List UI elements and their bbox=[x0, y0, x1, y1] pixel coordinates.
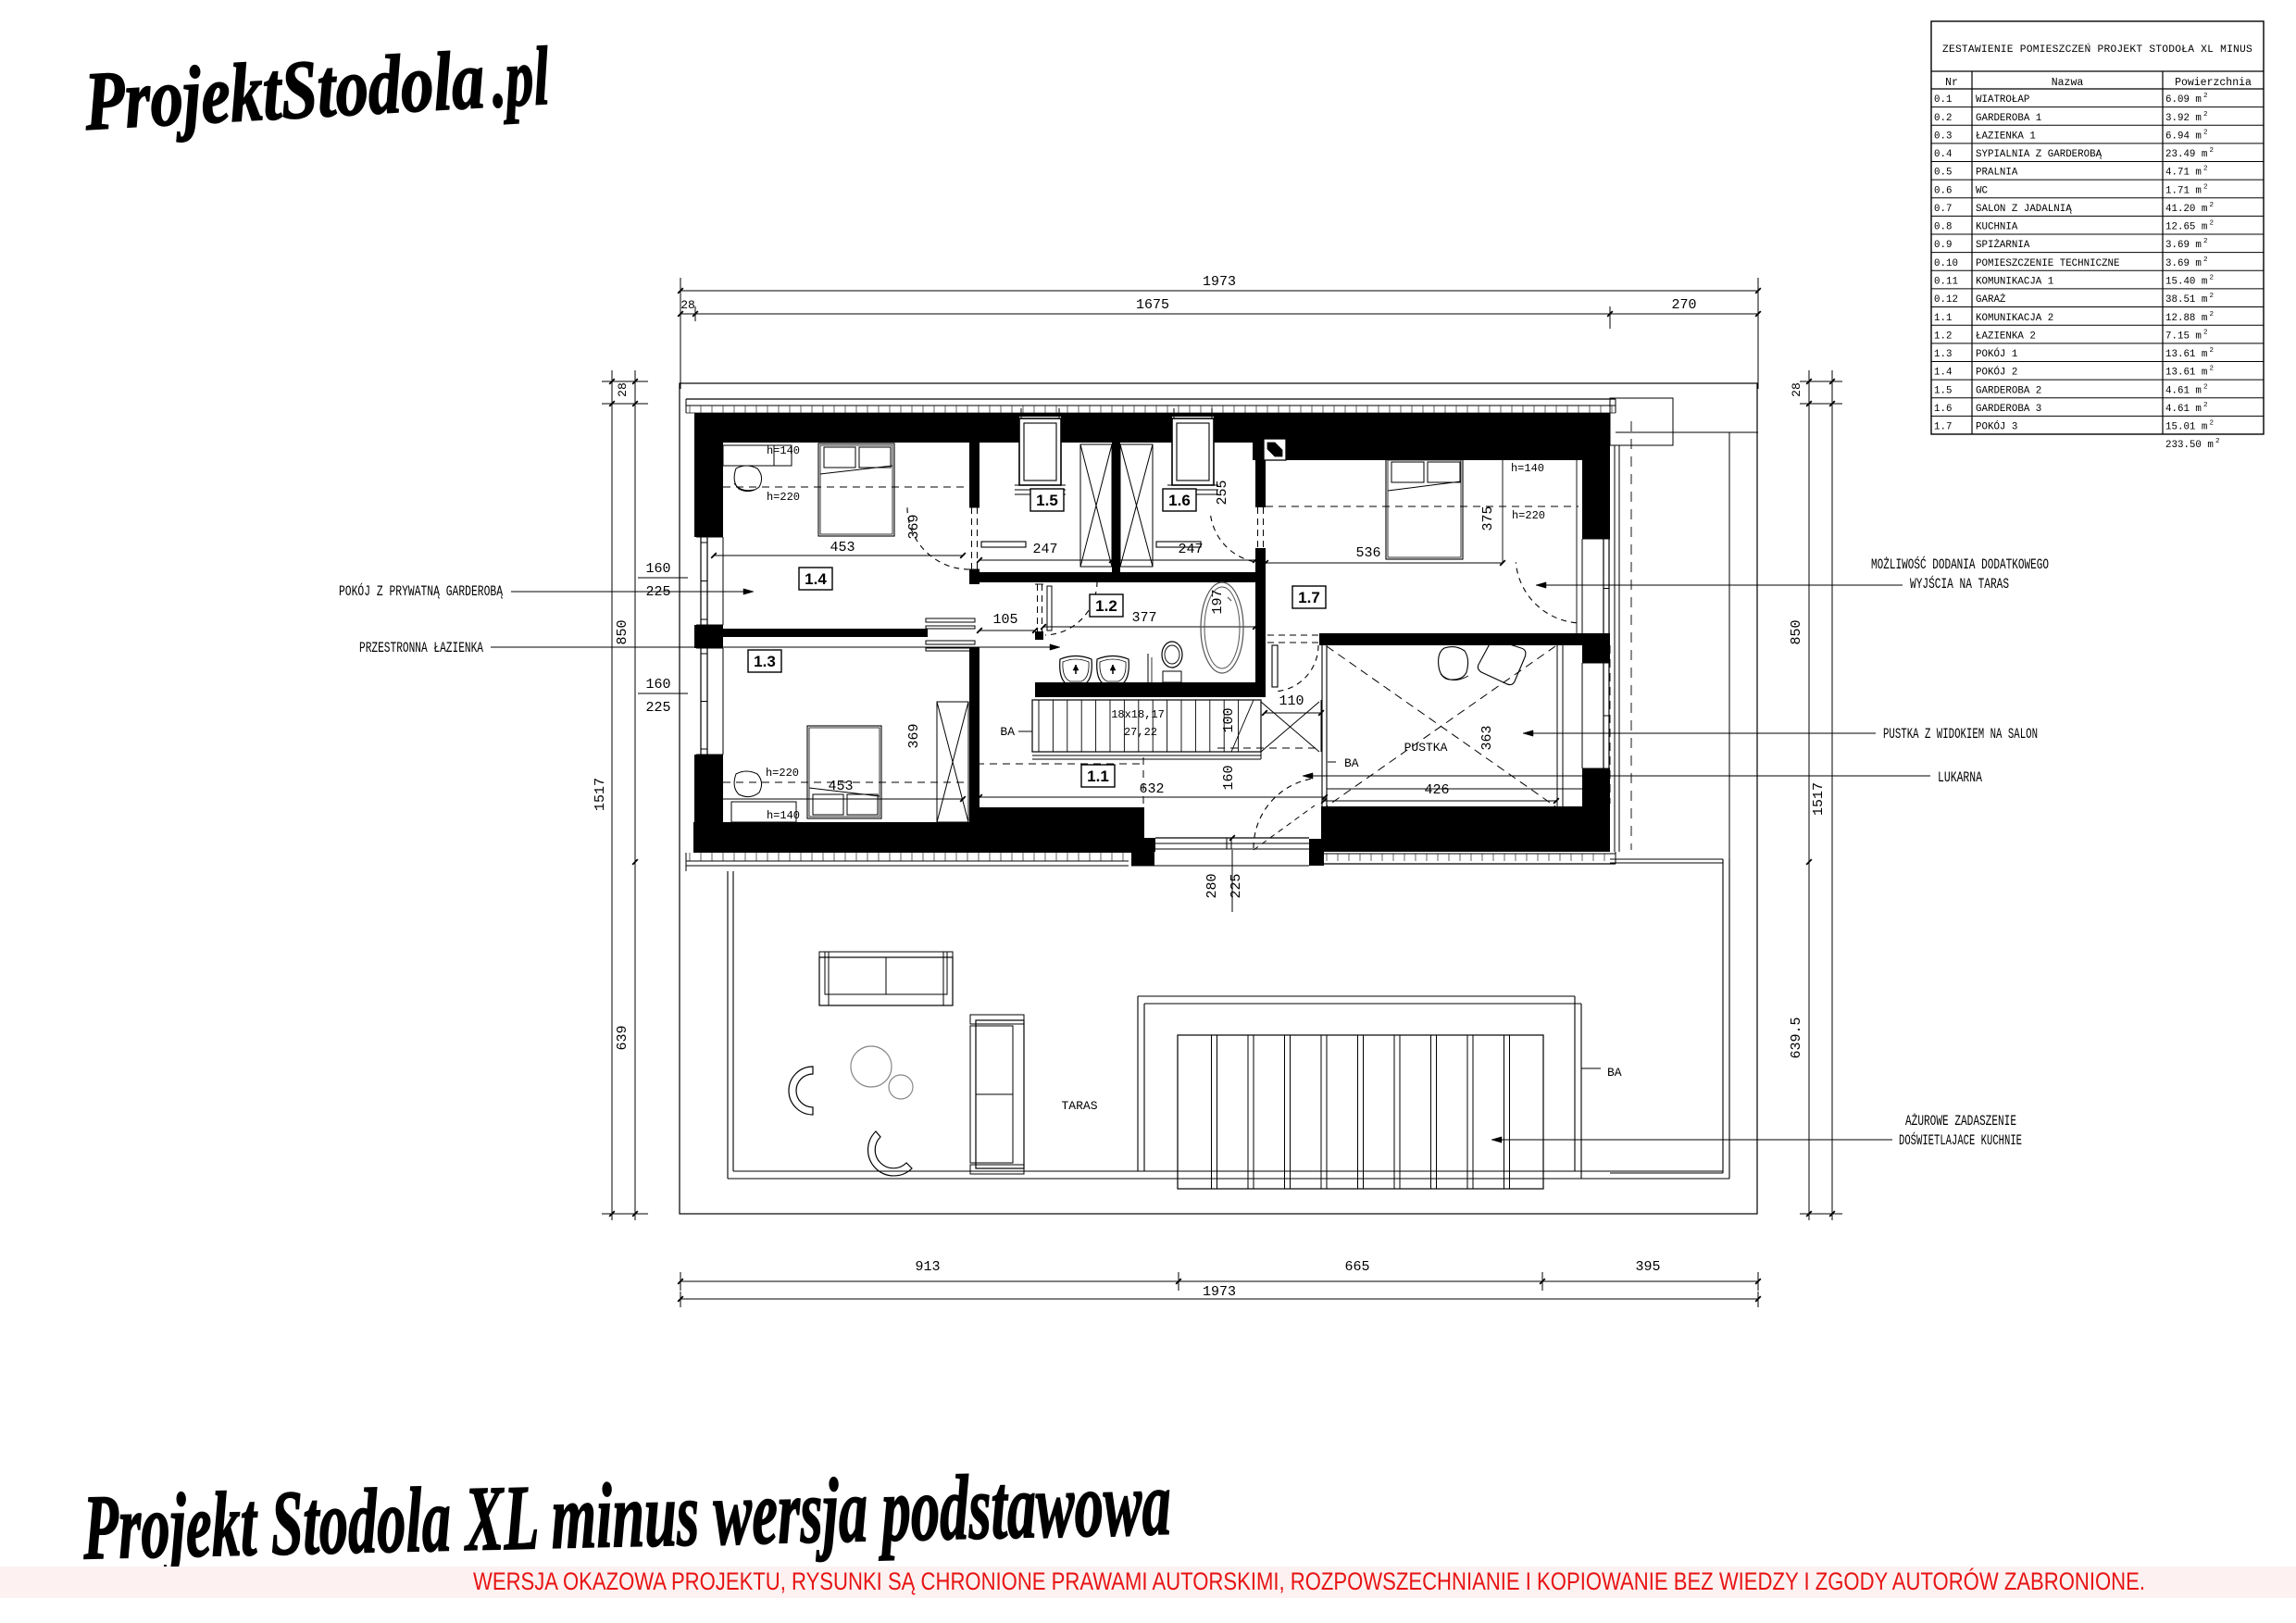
svg-text:2: 2 bbox=[2203, 111, 2208, 119]
svg-text:225: 225 bbox=[645, 700, 670, 716]
svg-text:160: 160 bbox=[645, 561, 670, 577]
svg-text:POKÓJ 1: POKÓJ 1 bbox=[1976, 347, 2017, 360]
svg-text:280: 280 bbox=[1204, 873, 1220, 898]
svg-text:POKÓJ 3: POKÓJ 3 bbox=[1976, 420, 2017, 433]
svg-text:PUSTKA Z WIDOKIEM NA SALON: PUSTKA Z WIDOKIEM NA SALON bbox=[1883, 726, 2038, 743]
svg-text:369: 369 bbox=[906, 514, 922, 539]
svg-text:1973: 1973 bbox=[1203, 1284, 1236, 1300]
svg-text:0.1: 0.1 bbox=[1934, 94, 1952, 106]
svg-text:6.09 m: 6.09 m bbox=[2165, 94, 2202, 106]
svg-text:160: 160 bbox=[645, 677, 670, 693]
svg-text:WC: WC bbox=[1976, 185, 1988, 196]
svg-text:KOMUNIKACJA 1: KOMUNIKACJA 1 bbox=[1976, 277, 2053, 288]
svg-text:41.20 m: 41.20 m bbox=[2165, 204, 2207, 215]
svg-text:3.69 m: 3.69 m bbox=[2165, 258, 2202, 269]
svg-text:3.92 m: 3.92 m bbox=[2165, 113, 2202, 124]
svg-text:0.9: 0.9 bbox=[1934, 240, 1952, 251]
svg-text:Nazwa: Nazwa bbox=[2052, 77, 2084, 89]
svg-text:0.10: 0.10 bbox=[1934, 258, 1958, 269]
svg-text:1.2: 1.2 bbox=[1095, 597, 1117, 615]
svg-text:2: 2 bbox=[2215, 438, 2220, 445]
svg-text:453: 453 bbox=[830, 540, 855, 556]
svg-text:7.15 m: 7.15 m bbox=[2165, 331, 2202, 342]
svg-text:2: 2 bbox=[2210, 147, 2215, 155]
svg-text:28: 28 bbox=[680, 298, 695, 312]
svg-text:1.4: 1.4 bbox=[805, 570, 827, 588]
svg-text:h=220: h=220 bbox=[766, 767, 799, 780]
svg-text:1.6: 1.6 bbox=[1934, 404, 1952, 415]
svg-text:2: 2 bbox=[2210, 202, 2215, 209]
svg-text:2: 2 bbox=[2203, 402, 2208, 409]
svg-text:SYPIALNIA Z GARDEROBĄ: SYPIALNIA Z GARDEROBĄ bbox=[1976, 149, 2103, 160]
svg-text:2: 2 bbox=[2210, 293, 2215, 300]
svg-text:ŁAZIENKA 2: ŁAZIENKA 2 bbox=[1976, 331, 2036, 342]
svg-text:0.4: 0.4 bbox=[1934, 149, 1952, 160]
svg-text:KUCHNIA: KUCHNIA bbox=[1976, 222, 2018, 233]
svg-text:2: 2 bbox=[2203, 93, 2208, 100]
svg-text:DOŚWIETLAJACE KUCHNIE: DOŚWIETLAJACE KUCHNIE bbox=[1899, 1131, 2022, 1149]
svg-text:WIATROŁAP: WIATROŁAP bbox=[1976, 94, 2029, 106]
svg-text:1.6: 1.6 bbox=[1168, 492, 1191, 509]
svg-text:2: 2 bbox=[2210, 275, 2215, 282]
svg-text:1.2: 1.2 bbox=[1934, 331, 1952, 342]
svg-text:4.71 m: 4.71 m bbox=[2165, 168, 2202, 179]
svg-text:2: 2 bbox=[2203, 129, 2208, 136]
svg-text:247: 247 bbox=[1178, 542, 1203, 557]
svg-text:15.40 m: 15.40 m bbox=[2165, 277, 2207, 288]
svg-text:13.61 m: 13.61 m bbox=[2165, 368, 2207, 379]
svg-text:1.7: 1.7 bbox=[1298, 589, 1320, 606]
svg-text:GARAŻ: GARAŻ bbox=[1976, 293, 2006, 306]
svg-text:0.12: 0.12 bbox=[1934, 294, 1958, 306]
svg-text:27,22: 27,22 bbox=[1124, 726, 1157, 739]
svg-text:AŻUROWE ZADASZENIE: AŻUROWE ZADASZENIE bbox=[1905, 1112, 2016, 1130]
svg-text:255: 255 bbox=[1215, 480, 1230, 505]
svg-text:h=140: h=140 bbox=[1511, 462, 1544, 475]
svg-text:PRZESTRONNA ŁAZIENKA: PRZESTRONNA ŁAZIENKA bbox=[359, 640, 483, 656]
svg-text:18x18,17: 18x18,17 bbox=[1111, 708, 1165, 721]
svg-text:h=140: h=140 bbox=[767, 444, 800, 457]
svg-text:BA: BA bbox=[1607, 1066, 1622, 1080]
svg-text:2: 2 bbox=[2203, 238, 2208, 245]
svg-text:0.7: 0.7 bbox=[1934, 204, 1952, 215]
svg-text:632: 632 bbox=[1139, 781, 1164, 797]
svg-text:375: 375 bbox=[1480, 506, 1496, 531]
svg-text:1.1: 1.1 bbox=[1087, 768, 1109, 785]
svg-text:SPIŻARNIA: SPIŻARNIA bbox=[1976, 239, 2030, 251]
svg-text:15.01 m: 15.01 m bbox=[2165, 422, 2207, 433]
svg-text:913: 913 bbox=[915, 1259, 940, 1275]
svg-text:h=220: h=220 bbox=[1512, 509, 1545, 522]
svg-text:WYJŚCIA NA TARAS: WYJŚCIA NA TARAS bbox=[1910, 575, 2009, 593]
svg-text:PUSTKA: PUSTKA bbox=[1404, 741, 1448, 755]
svg-text:POMIESZCZENIE TECHNICZNE: POMIESZCZENIE TECHNICZNE bbox=[1976, 258, 2120, 269]
svg-text:BA: BA bbox=[1344, 756, 1359, 770]
svg-text:Nr: Nr bbox=[1945, 77, 1958, 89]
svg-text:1.4: 1.4 bbox=[1934, 368, 1952, 379]
svg-text:Powierzchnia: Powierzchnia bbox=[2175, 77, 2252, 89]
svg-text:GARDEROBA 3: GARDEROBA 3 bbox=[1976, 404, 2041, 415]
svg-text:369: 369 bbox=[906, 723, 922, 748]
svg-text:0.8: 0.8 bbox=[1934, 222, 1952, 233]
svg-text:3.69 m: 3.69 m bbox=[2165, 240, 2202, 251]
svg-text:28: 28 bbox=[1790, 382, 1803, 397]
svg-text:23.49 m: 23.49 m bbox=[2165, 149, 2207, 160]
svg-text:1.5: 1.5 bbox=[1934, 385, 1952, 396]
svg-text:2: 2 bbox=[2203, 329, 2208, 336]
svg-text:1517: 1517 bbox=[593, 778, 608, 811]
svg-text:4.61 m: 4.61 m bbox=[2165, 385, 2202, 396]
svg-text:1517: 1517 bbox=[1811, 782, 1827, 816]
svg-text:GARDEROBA 2: GARDEROBA 2 bbox=[1976, 385, 2041, 396]
svg-text:426: 426 bbox=[1424, 782, 1449, 798]
svg-text:850: 850 bbox=[1789, 619, 1804, 644]
svg-text:KOMUNIKACJA 2: KOMUNIKACJA 2 bbox=[1976, 313, 2053, 324]
svg-text:h=220: h=220 bbox=[767, 491, 800, 504]
svg-text:1675: 1675 bbox=[1136, 297, 1169, 313]
svg-text:13.61 m: 13.61 m bbox=[2165, 349, 2207, 360]
svg-text:SALON Z JADALNIĄ: SALON Z JADALNIĄ bbox=[1976, 204, 2072, 215]
svg-text:453: 453 bbox=[828, 779, 853, 794]
svg-text:ZESTAWIENIE POMIESZCZEŃ PROJEK: ZESTAWIENIE POMIESZCZEŃ PROJEKT STODOŁA … bbox=[1942, 43, 2252, 56]
svg-text:363: 363 bbox=[1479, 725, 1495, 750]
svg-text:GARDEROBA 1: GARDEROBA 1 bbox=[1976, 113, 2041, 124]
svg-text:PRALNIA: PRALNIA bbox=[1976, 168, 2018, 179]
svg-text:ŁAZIENKA 1: ŁAZIENKA 1 bbox=[1976, 131, 2036, 142]
svg-text:TARAS: TARAS bbox=[1061, 1099, 1097, 1113]
svg-text:4.61 m: 4.61 m bbox=[2165, 404, 2202, 415]
svg-text:0.6: 0.6 bbox=[1934, 185, 1952, 196]
svg-text:1973: 1973 bbox=[1203, 274, 1236, 290]
svg-text:2: 2 bbox=[2203, 383, 2208, 391]
svg-text:0.5: 0.5 bbox=[1934, 168, 1952, 179]
svg-text:12.65 m: 12.65 m bbox=[2165, 222, 2207, 233]
svg-text:2: 2 bbox=[2210, 420, 2215, 428]
svg-text:160: 160 bbox=[1221, 765, 1237, 790]
svg-text:WERSJA OKAZOWA PROJEKTU, RYSUN: WERSJA OKAZOWA PROJEKTU, RYSUNKI SĄ CHRO… bbox=[473, 1567, 2145, 1595]
svg-text:639.5: 639.5 bbox=[1789, 1017, 1804, 1058]
svg-text:2: 2 bbox=[2203, 166, 2208, 173]
svg-text:12.88 m: 12.88 m bbox=[2165, 313, 2207, 324]
svg-text:0.11: 0.11 bbox=[1934, 277, 1958, 288]
svg-text:1.7: 1.7 bbox=[1934, 422, 1952, 433]
svg-text:MOŻLIWOŚĆ DODANIA DODATKOWEGO: MOŻLIWOŚĆ DODANIA DODATKOWEGO bbox=[1871, 556, 2049, 573]
svg-text:38.51 m: 38.51 m bbox=[2165, 294, 2207, 306]
svg-text:377: 377 bbox=[1131, 610, 1156, 626]
svg-text:POKÓJ 2: POKÓJ 2 bbox=[1976, 366, 2017, 379]
svg-text:2: 2 bbox=[2210, 220, 2215, 228]
svg-text:BA: BA bbox=[1000, 725, 1015, 739]
svg-text:1.5: 1.5 bbox=[1036, 492, 1058, 509]
svg-text:395: 395 bbox=[1635, 1259, 1660, 1275]
svg-text:6.94 m: 6.94 m bbox=[2165, 131, 2202, 142]
svg-text:2: 2 bbox=[2210, 366, 2215, 373]
svg-text:110: 110 bbox=[1279, 693, 1304, 709]
svg-text:225: 225 bbox=[645, 584, 670, 600]
svg-text:233.50 m: 233.50 m bbox=[2165, 440, 2214, 451]
svg-text:270: 270 bbox=[1671, 297, 1696, 313]
svg-text:1.3: 1.3 bbox=[754, 653, 776, 670]
svg-text:105: 105 bbox=[992, 612, 1017, 628]
svg-text:28: 28 bbox=[616, 382, 630, 397]
svg-text:225: 225 bbox=[1229, 873, 1244, 898]
svg-text:2: 2 bbox=[2210, 311, 2215, 318]
svg-text:POKÓJ Z PRYWATNĄ GARDEROBĄ: POKÓJ Z PRYWATNĄ GARDEROBĄ bbox=[339, 582, 503, 600]
svg-text:2: 2 bbox=[2203, 256, 2208, 264]
svg-text:h=140: h=140 bbox=[767, 809, 800, 822]
svg-text:639: 639 bbox=[615, 1025, 630, 1050]
svg-text:247: 247 bbox=[1032, 542, 1057, 557]
svg-text:1.1: 1.1 bbox=[1934, 313, 1952, 324]
svg-text:1.71 m: 1.71 m bbox=[2165, 185, 2202, 196]
svg-text:536: 536 bbox=[1355, 545, 1380, 561]
svg-text:0.3: 0.3 bbox=[1934, 131, 1952, 142]
svg-text:.pl: .pl bbox=[489, 31, 551, 125]
svg-text:LUKARNA: LUKARNA bbox=[1938, 769, 1982, 786]
svg-text:2: 2 bbox=[2203, 183, 2208, 191]
svg-text:2: 2 bbox=[2210, 347, 2215, 355]
svg-text:0.2: 0.2 bbox=[1934, 113, 1952, 124]
svg-text:665: 665 bbox=[1344, 1259, 1369, 1275]
svg-text:850: 850 bbox=[615, 619, 630, 644]
svg-text:100: 100 bbox=[1221, 707, 1237, 732]
svg-text:1.3: 1.3 bbox=[1934, 349, 1952, 360]
